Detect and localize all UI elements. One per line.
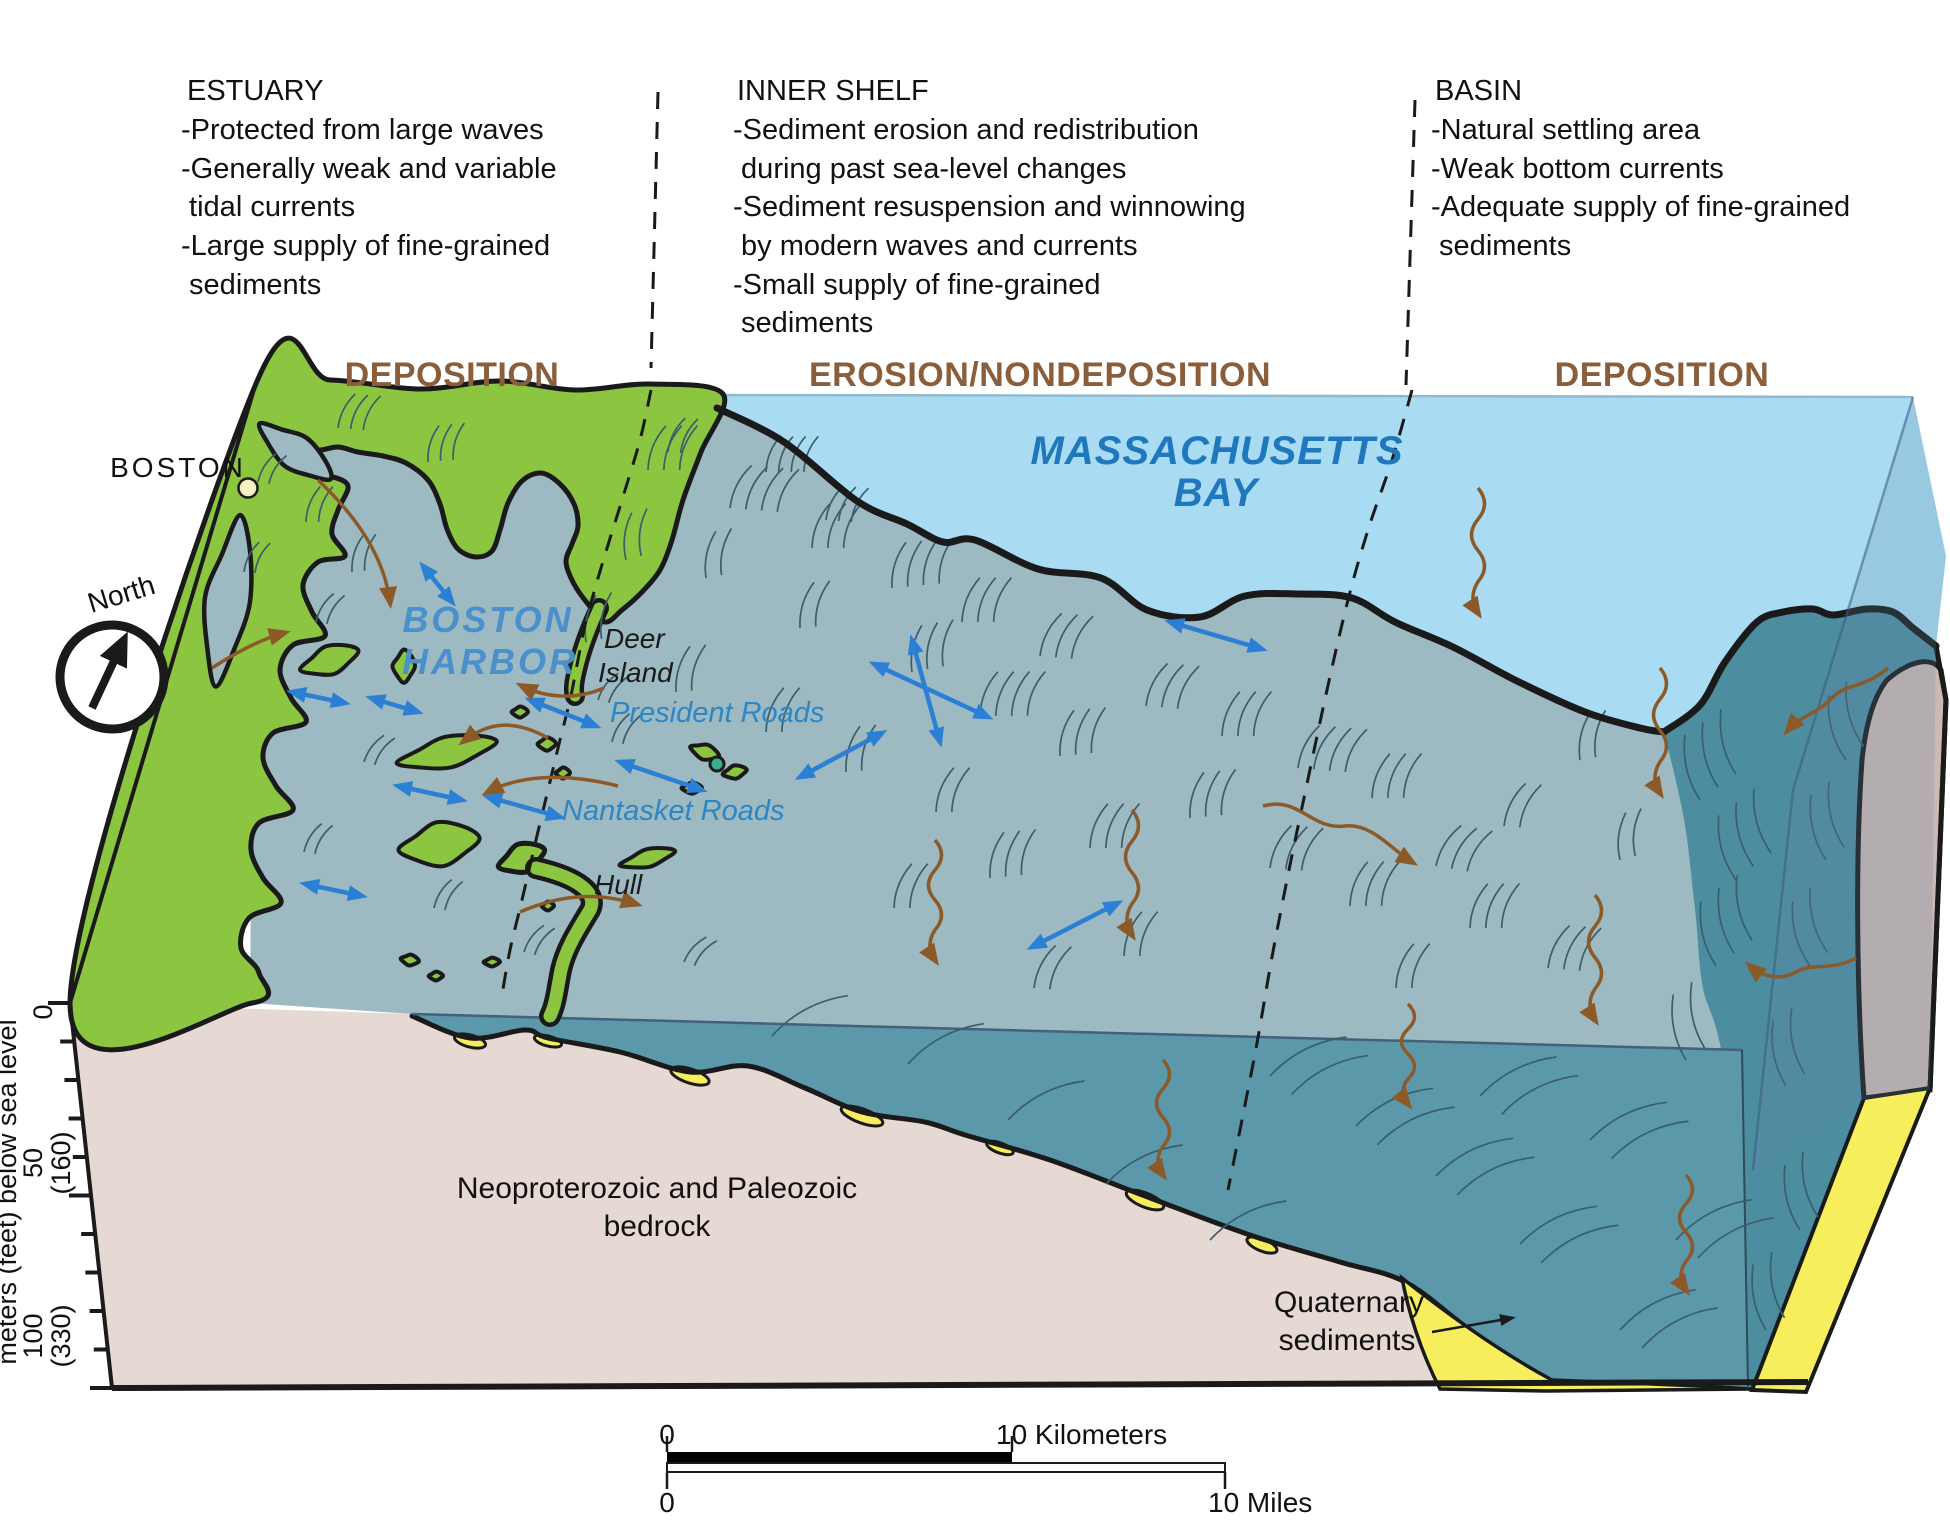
terrain-regions (70, 338, 1946, 1392)
massachusetts-bay-label-2: BAY (1174, 471, 1261, 515)
scalebar-km (667, 1452, 1012, 1463)
basin-line: -Adequate supply of fine-grained (1431, 191, 1850, 223)
north-label: North (84, 569, 159, 619)
inner-shelf-title: INNER SHELF (737, 75, 929, 107)
quaternary-label-1: Quaternary (1274, 1286, 1424, 1319)
block-diagram-svg: ESTUARY -Protected from large waves -Gen… (0, 0, 1950, 1533)
harbor-island-teal (710, 757, 724, 771)
boston-harbor-label-1: BOSTON (402, 599, 573, 640)
axis-tick-50-ft: (160) (46, 1131, 76, 1194)
harbor-island (484, 958, 500, 967)
boston-label: BOSTON (110, 452, 246, 483)
bedrock-label-2: bedrock (604, 1210, 712, 1243)
inner-shelf-line: -Sediment resuspension and winnowing (733, 191, 1246, 223)
estuary-title: ESTUARY (187, 75, 323, 107)
zone-label-deposition-left: DEPOSITION (345, 356, 560, 394)
annotation-column-inner-shelf: INNER SHELF -Sediment erosion and redist… (733, 75, 1246, 339)
figure-canvas: ESTUARY -Protected from large waves -Gen… (0, 0, 1950, 1533)
axis-title: meters (feet) below sea level (0, 1019, 22, 1364)
column-separator-left (651, 92, 658, 368)
estuary-line: sediments (181, 269, 321, 301)
inner-shelf-line: during past sea-level changes (733, 153, 1126, 185)
deer-island-label-1: Deer (604, 623, 666, 654)
deer-island-label-2: Island (598, 657, 674, 688)
compass-circle (60, 625, 164, 729)
column-separator-right (1406, 100, 1415, 385)
zone-label-deposition-right: DEPOSITION (1555, 356, 1770, 394)
president-roads-label: President Roads (610, 697, 824, 729)
harbor-island (538, 737, 556, 750)
scalebar-miles (667, 1463, 1225, 1472)
quaternary-label-2: sediments (1279, 1324, 1416, 1357)
estuary-line: tidal currents (181, 191, 355, 223)
inner-shelf-line: by modern waves and currents (733, 230, 1138, 262)
bedrock-label-1: Neoproterozoic and Paleozoic (457, 1172, 857, 1205)
basin-line: sediments (1431, 230, 1571, 262)
estuary-line: -Generally weak and variable (181, 153, 557, 185)
inner-shelf-line: sediments (733, 307, 873, 339)
axis-tick-0: 0 (28, 1004, 58, 1019)
zone-label-erosion: EROSION/NONDEPOSITION (809, 356, 1271, 394)
harbor-island (401, 955, 419, 966)
annotation-column-basin: BASIN -Natural settling area -Weak botto… (1431, 75, 1850, 262)
axis-tick-100: 100 (18, 1313, 48, 1358)
annotation-column-estuary: ESTUARY -Protected from large waves -Gen… (181, 75, 557, 301)
basin-line: -Weak bottom currents (1431, 153, 1724, 185)
scalebar-mi-label: 10 Miles (1208, 1487, 1312, 1518)
hull-label: Hull (594, 869, 643, 900)
basin-line: -Natural settling area (1431, 114, 1701, 146)
estuary-line: -Large supply of fine-grained (181, 230, 550, 262)
axis-tick-100-ft: (330) (46, 1304, 76, 1367)
scalebar-km-label: 10 Kilometers (996, 1419, 1167, 1450)
harbor-island (429, 972, 443, 981)
basin-title: BASIN (1435, 75, 1522, 107)
axis-tick-50: 50 (18, 1148, 48, 1178)
massachusetts-bay-label-1: MASSACHUSETTS (1030, 429, 1403, 473)
estuary-line: -Protected from large waves (181, 114, 544, 146)
scalebar-km-zero: 0 (659, 1419, 675, 1450)
scalebar-mi-zero: 0 (659, 1487, 675, 1518)
boston-harbor-label-2: HARBOR (402, 641, 578, 682)
nantasket-roads-label: Nantasket Roads (562, 795, 784, 827)
inner-shelf-line: -Sediment erosion and redistribution (733, 114, 1199, 146)
inner-shelf-line: -Small supply of fine-grained (733, 269, 1101, 301)
harbor-island (512, 706, 528, 717)
